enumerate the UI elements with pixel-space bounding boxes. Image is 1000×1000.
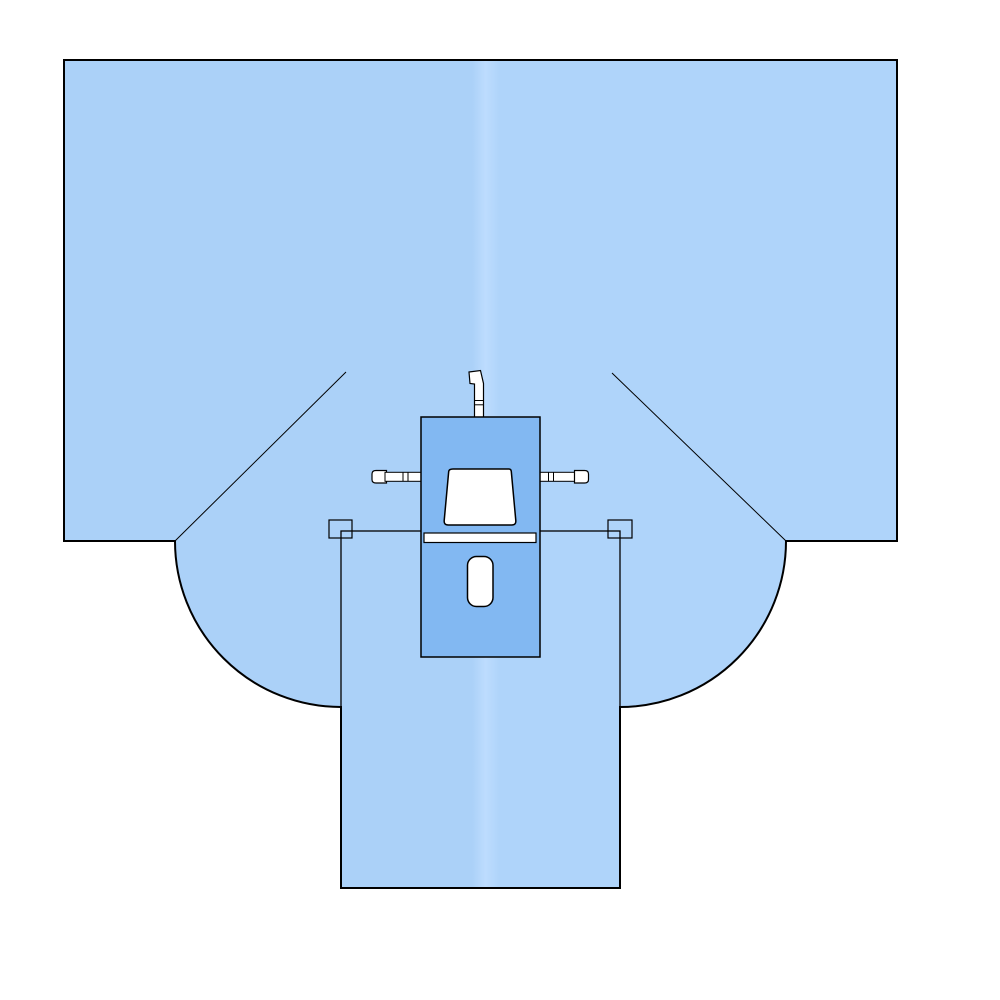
fenestration-slot bbox=[468, 557, 494, 607]
tube-holder-left-cap bbox=[372, 471, 387, 484]
fenestration-trapezoid bbox=[444, 469, 516, 525]
adhesive-strip bbox=[424, 533, 536, 543]
tube-holder-right-shaft bbox=[540, 472, 575, 481]
tube-holder-right-cap bbox=[575, 471, 589, 484]
surgical-drape-illustration bbox=[0, 0, 1000, 1000]
drape-diagram-svg bbox=[0, 0, 1000, 1000]
